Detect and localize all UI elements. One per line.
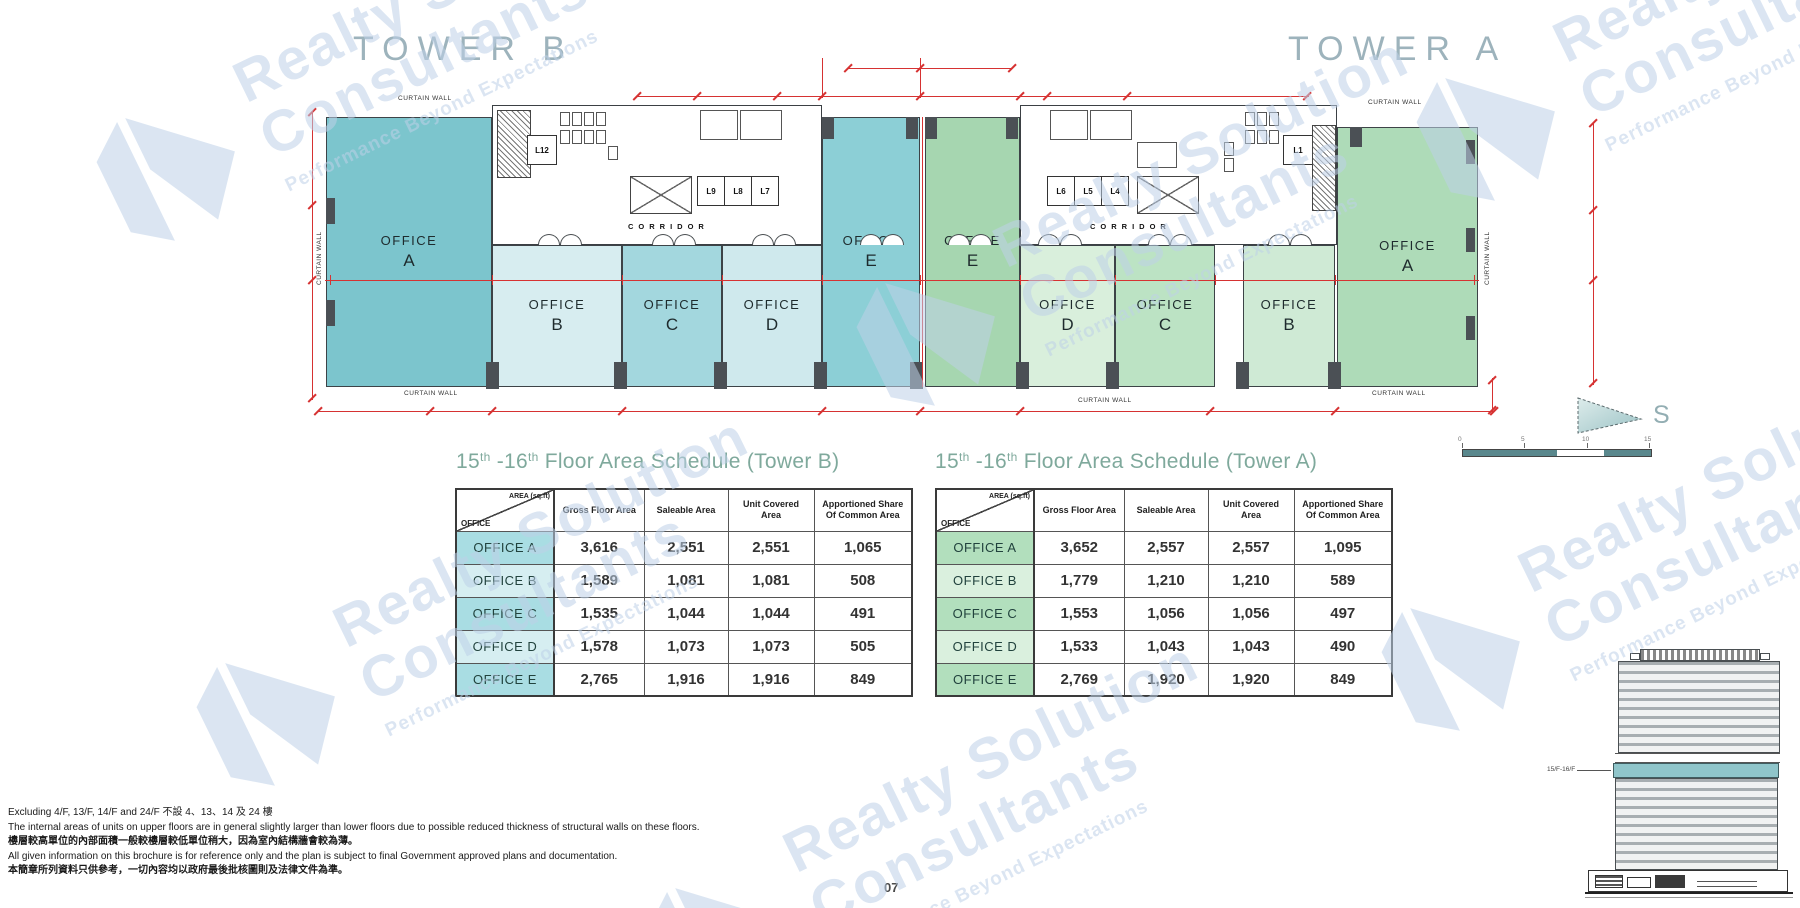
office-label-cell: OFFICE A bbox=[936, 531, 1034, 564]
core-room bbox=[1137, 142, 1177, 168]
dimension-cross bbox=[1115, 275, 1116, 285]
area-value-cell: 508 bbox=[814, 564, 912, 597]
lift-box: L5 bbox=[1074, 176, 1102, 206]
column-header-cell: Unit Covered Area bbox=[728, 489, 814, 531]
table-row: OFFICE B1,5891,0811,081508 bbox=[456, 564, 912, 597]
podium-detail bbox=[1697, 881, 1757, 887]
area-value-cell: 589 bbox=[1294, 564, 1392, 597]
dimension-tick bbox=[1303, 92, 1312, 101]
lift-box: L7 bbox=[751, 176, 779, 206]
dimension-cross bbox=[492, 275, 493, 285]
office-letter: E bbox=[967, 250, 978, 271]
footnote-line: Excluding 4/F, 13/F, 14/F and 24/F 不設 4、… bbox=[8, 806, 908, 821]
stair-hatch bbox=[1312, 125, 1336, 211]
area-value-cell: 1,920 bbox=[1124, 663, 1208, 696]
core-room bbox=[740, 110, 782, 140]
dimension-cross bbox=[1335, 275, 1336, 285]
core-room bbox=[700, 110, 738, 140]
brochure-page: TOWER B TOWER A L12 L9 L8 L7 CORRIDOR L6… bbox=[0, 0, 1800, 908]
column-block bbox=[1016, 362, 1029, 389]
footnotes: Excluding 4/F, 13/F, 14/F and 24/F 不設 4、… bbox=[8, 806, 908, 879]
table-row: OFFICE E2,7651,9161,916849 bbox=[456, 663, 912, 696]
lift-box: L12 bbox=[527, 135, 557, 165]
curtain-wall-label: CURTAIN WALL bbox=[1368, 99, 1422, 106]
tower-b-title: TOWER B bbox=[353, 30, 574, 69]
ground-line bbox=[1585, 892, 1793, 894]
north-arrow-icon bbox=[1575, 394, 1645, 436]
lift-box: L4 bbox=[1101, 176, 1129, 206]
dimension-line bbox=[637, 96, 1309, 97]
office-room-b-d: OFFICED bbox=[722, 245, 822, 387]
dimension-cross bbox=[1215, 275, 1216, 285]
column-header-cell: Saleable Area bbox=[1124, 489, 1208, 531]
area-value-cell: 2,551 bbox=[644, 531, 728, 564]
area-value-cell: 1,081 bbox=[728, 564, 814, 597]
office-letter: D bbox=[766, 314, 778, 335]
upper-floors bbox=[1618, 661, 1780, 753]
area-value-cell: 1,073 bbox=[644, 630, 728, 663]
column-header-cell: Unit Covered Area bbox=[1208, 489, 1294, 531]
area-value-cell: 1,920 bbox=[1208, 663, 1294, 696]
building-elevation: 15/F-16/F bbox=[1585, 645, 1797, 897]
footnote-line: 樓層較高單位的內部面積一般較樓層較低單位稍大，因為室內結構牆會較為薄。 bbox=[8, 835, 908, 850]
office-label-cell: OFFICE B bbox=[456, 564, 554, 597]
column-block bbox=[326, 300, 335, 326]
office-word: OFFICE bbox=[529, 297, 586, 313]
area-value-cell: 1,553 bbox=[1034, 597, 1124, 630]
column-block bbox=[925, 117, 937, 139]
dimension-line bbox=[922, 117, 923, 387]
office-label-cell: OFFICE C bbox=[936, 597, 1034, 630]
office-room-b-c: OFFICEC bbox=[622, 245, 722, 387]
area-value-cell: 1,095 bbox=[1294, 531, 1392, 564]
area-value-cell: 1,044 bbox=[644, 597, 728, 630]
corner-header-cell: AREA (sq.ft)OFFICE bbox=[936, 489, 1034, 531]
area-value-cell: 2,557 bbox=[1124, 531, 1208, 564]
wc-stall-box bbox=[596, 130, 606, 144]
compass-direction-label: S bbox=[1653, 401, 1670, 430]
wc-stall-box bbox=[560, 130, 570, 144]
footnote-line: All given information on this brochure i… bbox=[8, 850, 908, 865]
office-letter: E bbox=[865, 250, 876, 271]
wc-stall-box bbox=[1224, 142, 1234, 156]
dimension-cross bbox=[1474, 275, 1475, 285]
wc-stall-box bbox=[584, 112, 594, 126]
wc-stall-box bbox=[1269, 112, 1279, 126]
area-value-cell: 1,043 bbox=[1208, 630, 1294, 663]
column-header-cell: Apportioned Share Of Common Area bbox=[1294, 489, 1392, 531]
column-block bbox=[1466, 316, 1475, 340]
area-value-cell: 1,535 bbox=[554, 597, 644, 630]
curtain-wall-label: CURTAIN WALL bbox=[404, 390, 458, 397]
refuge-floor bbox=[1615, 753, 1780, 763]
office-room-a-c: OFFICEC bbox=[1115, 245, 1215, 387]
office-room-a-d: OFFICED bbox=[1020, 245, 1115, 387]
wc-stall-box bbox=[596, 112, 606, 126]
office-room-b-b: OFFICEB bbox=[492, 245, 622, 387]
table-row: OFFICE C1,5531,0561,056497 bbox=[936, 597, 1392, 630]
area-value-cell: 3,616 bbox=[554, 531, 644, 564]
area-value-cell: 1,065 bbox=[814, 531, 912, 564]
area-value-cell: 1,533 bbox=[1034, 630, 1124, 663]
wc-stall-box bbox=[572, 130, 582, 144]
tower-a-area-schedule: AREA (sq.ft)OFFICEGross Floor AreaSaleab… bbox=[935, 488, 1393, 697]
dimension-line bbox=[330, 280, 1476, 281]
office-room-b-e: OFFICEE bbox=[822, 117, 920, 387]
tower-b-area-schedule: AREA (sq.ft)OFFICEGross Floor AreaSaleab… bbox=[455, 488, 913, 697]
roof-plant bbox=[1640, 649, 1760, 661]
floor-area-schedule-table: AREA (sq.ft)OFFICEGross Floor AreaSaleab… bbox=[935, 488, 1393, 697]
leader-line bbox=[1577, 770, 1611, 771]
office-word: OFFICE bbox=[381, 233, 438, 249]
office-word: OFFICE bbox=[744, 297, 801, 313]
office-word: OFFICE bbox=[1379, 238, 1436, 254]
column-block bbox=[1106, 362, 1119, 389]
column-block bbox=[1466, 228, 1475, 252]
corner-header-cell: AREA (sq.ft)OFFICE bbox=[456, 489, 554, 531]
lower-floors bbox=[1615, 778, 1778, 870]
area-value-cell: 2,765 bbox=[554, 663, 644, 696]
column-header-cell: Apportioned Share Of Common Area bbox=[814, 489, 912, 531]
area-value-cell: 849 bbox=[1294, 663, 1392, 696]
dimension-line bbox=[920, 58, 921, 98]
column-block bbox=[822, 117, 834, 139]
area-value-cell: 1,916 bbox=[644, 663, 728, 696]
dimension-line bbox=[822, 58, 823, 98]
wc-stall-box bbox=[1245, 112, 1255, 126]
lift-box: L8 bbox=[724, 176, 752, 206]
realty-logo-icon bbox=[170, 614, 371, 815]
office-letter: C bbox=[1159, 314, 1171, 335]
area-value-cell: 1,589 bbox=[554, 564, 644, 597]
area-value-cell: 505 bbox=[814, 630, 912, 663]
roof-bracket bbox=[1630, 653, 1640, 660]
column-header-cell: Gross Floor Area bbox=[554, 489, 644, 531]
area-value-cell: 1,210 bbox=[1208, 564, 1294, 597]
column-block bbox=[1350, 127, 1362, 147]
curtain-wall-label: CURTAIN WALL bbox=[316, 231, 323, 285]
office-room-a-e: OFFICEE bbox=[925, 117, 1020, 387]
office-room-b-a: OFFICEA bbox=[326, 117, 492, 387]
office-label-cell: OFFICE D bbox=[936, 630, 1034, 663]
area-value-cell: 1,081 bbox=[644, 564, 728, 597]
area-value-cell: 3,652 bbox=[1034, 531, 1124, 564]
dimension-line bbox=[312, 112, 313, 400]
area-value-cell: 490 bbox=[1294, 630, 1392, 663]
office-label-cell: OFFICE E bbox=[456, 663, 554, 696]
scale-bar bbox=[1462, 449, 1652, 457]
scale-tick-label: 10 bbox=[1582, 436, 1589, 443]
table-row: OFFICE A3,6522,5572,5571,095 bbox=[936, 531, 1392, 564]
podium-detail bbox=[1595, 875, 1623, 888]
schedule-title-tower-b: 15th -16th Floor Area Schedule (Tower B) bbox=[456, 450, 839, 474]
area-value-cell: 1,043 bbox=[1124, 630, 1208, 663]
dimension-cross bbox=[1020, 275, 1021, 285]
footnote-line: The internal areas of units on upper flo… bbox=[8, 821, 908, 836]
core-room bbox=[1090, 110, 1132, 140]
dimension-cross bbox=[822, 275, 823, 285]
curtain-wall-label: CURTAIN WALL bbox=[1372, 390, 1426, 397]
area-value-cell: 849 bbox=[814, 663, 912, 696]
column-header-cell: Saleable Area bbox=[644, 489, 728, 531]
wc-stall-box bbox=[608, 146, 618, 160]
scale-tick-label: 0 bbox=[1458, 436, 1462, 443]
column-block bbox=[714, 362, 727, 389]
wc-stall-box bbox=[1257, 112, 1267, 126]
stair-hatch bbox=[497, 110, 531, 178]
podium-detail bbox=[1655, 875, 1685, 888]
schedule-title-tower-a: 15th -16th Floor Area Schedule (Tower A) bbox=[935, 450, 1317, 474]
wc-stall-box bbox=[584, 130, 594, 144]
office-label-cell: OFFICE E bbox=[936, 663, 1034, 696]
table-row: OFFICE D1,5331,0431,043490 bbox=[936, 630, 1392, 663]
wc-stall-box bbox=[1269, 130, 1279, 144]
curtain-wall-label: CURTAIN WALL bbox=[1484, 231, 1491, 285]
area-value-cell: 1,073 bbox=[728, 630, 814, 663]
wc-stall-box bbox=[572, 112, 582, 126]
wc-stall-box bbox=[1245, 130, 1255, 144]
floor-area-schedule-table: AREA (sq.ft)OFFICEGross Floor AreaSaleab… bbox=[455, 488, 913, 697]
office-word: OFFICE bbox=[1261, 297, 1318, 313]
page-number: 07 bbox=[884, 880, 898, 895]
curtain-wall-label: CURTAIN WALL bbox=[1078, 397, 1132, 404]
dimension-cross bbox=[622, 275, 623, 285]
corridor-label: CORRIDOR bbox=[1090, 222, 1171, 231]
area-value-cell: 2,551 bbox=[728, 531, 814, 564]
dimension-cross bbox=[722, 275, 723, 285]
office-label-cell: OFFICE B bbox=[936, 564, 1034, 597]
scale-tick-label: 5 bbox=[1521, 436, 1525, 443]
column-block bbox=[614, 362, 627, 389]
column-block bbox=[1236, 362, 1249, 389]
area-value-cell: 497 bbox=[1294, 597, 1392, 630]
corridor-label: CORRIDOR bbox=[628, 222, 709, 231]
area-value-cell: 1,210 bbox=[1124, 564, 1208, 597]
column-block bbox=[1328, 362, 1341, 389]
office-letter: B bbox=[551, 314, 562, 335]
table-row: OFFICE E2,7691,9201,920849 bbox=[936, 663, 1392, 696]
office-letter: A bbox=[403, 250, 414, 271]
area-value-cell: 1,056 bbox=[1208, 597, 1294, 630]
lift-box: L6 bbox=[1047, 176, 1075, 206]
office-letter: C bbox=[666, 314, 678, 335]
office-room-a-b: OFFICEB bbox=[1243, 245, 1335, 387]
wc-stall-box bbox=[1257, 130, 1267, 144]
lift-box: L9 bbox=[697, 176, 725, 206]
column-block bbox=[1466, 140, 1475, 164]
office-letter: B bbox=[1283, 314, 1294, 335]
area-value-cell: 1,916 bbox=[728, 663, 814, 696]
column-block bbox=[1006, 117, 1018, 139]
provision-xbox bbox=[630, 176, 692, 214]
dimension-line bbox=[1593, 123, 1594, 385]
roof-bracket bbox=[1760, 653, 1770, 660]
tower-a-title: TOWER A bbox=[1288, 30, 1507, 69]
column-block bbox=[906, 117, 918, 139]
office-letter: A bbox=[1402, 255, 1413, 276]
column-block bbox=[814, 362, 827, 389]
core-room bbox=[1050, 110, 1088, 140]
column-block bbox=[326, 198, 335, 224]
dimension-line bbox=[848, 68, 1012, 69]
area-value-cell: 1,578 bbox=[554, 630, 644, 663]
column-header-cell: Gross Floor Area bbox=[1034, 489, 1124, 531]
floor-band-label: 15/F-16/F bbox=[1547, 766, 1575, 773]
office-word: OFFICE bbox=[644, 297, 701, 313]
wc-stall-box bbox=[560, 112, 570, 126]
area-value-cell: 2,557 bbox=[1208, 531, 1294, 564]
table-row: OFFICE C1,5351,0441,044491 bbox=[456, 597, 912, 630]
dimension-cross bbox=[330, 275, 331, 285]
column-block bbox=[486, 362, 499, 389]
office-word: OFFICE bbox=[1137, 297, 1194, 313]
dimension-cross bbox=[920, 275, 921, 285]
office-label-cell: OFFICE D bbox=[456, 630, 554, 663]
table-row: OFFICE D1,5781,0731,073505 bbox=[456, 630, 912, 663]
dimension-tick bbox=[1008, 64, 1017, 73]
area-value-cell: 1,779 bbox=[1034, 564, 1124, 597]
curtain-wall-label: CURTAIN WALL bbox=[398, 95, 452, 102]
dimension-line bbox=[318, 411, 1494, 412]
ground-line bbox=[1585, 897, 1793, 898]
dimension-tick bbox=[308, 394, 317, 403]
office-word: OFFICE bbox=[1039, 297, 1096, 313]
table-row: OFFICE A3,6162,5512,5511,065 bbox=[456, 531, 912, 564]
table-row: OFFICE B1,7791,2101,210589 bbox=[936, 564, 1392, 597]
footnote-line: 本簡章所列資料只供參考，一切內容均以政府最後批核圖則及法律文件為準。 bbox=[8, 864, 908, 879]
provision-xbox bbox=[1137, 176, 1199, 214]
lift-box: L1 bbox=[1283, 135, 1313, 165]
office-room-a-a: OFFICEA bbox=[1337, 127, 1478, 387]
area-value-cell: 1,056 bbox=[1124, 597, 1208, 630]
wc-stall-box bbox=[1224, 158, 1234, 172]
office-label-cell: OFFICE C bbox=[456, 597, 554, 630]
area-value-cell: 491 bbox=[814, 597, 912, 630]
area-value-cell: 2,769 bbox=[1034, 663, 1124, 696]
realty-logo-icon bbox=[70, 69, 271, 270]
area-value-cell: 1,044 bbox=[728, 597, 814, 630]
scale-tick-label: 15 bbox=[1644, 436, 1651, 443]
highlighted-floor-band bbox=[1613, 763, 1779, 778]
podium-detail bbox=[1627, 877, 1651, 888]
office-label-cell: OFFICE A bbox=[456, 531, 554, 564]
office-letter: D bbox=[1061, 314, 1073, 335]
dimension-tick bbox=[1589, 379, 1598, 388]
